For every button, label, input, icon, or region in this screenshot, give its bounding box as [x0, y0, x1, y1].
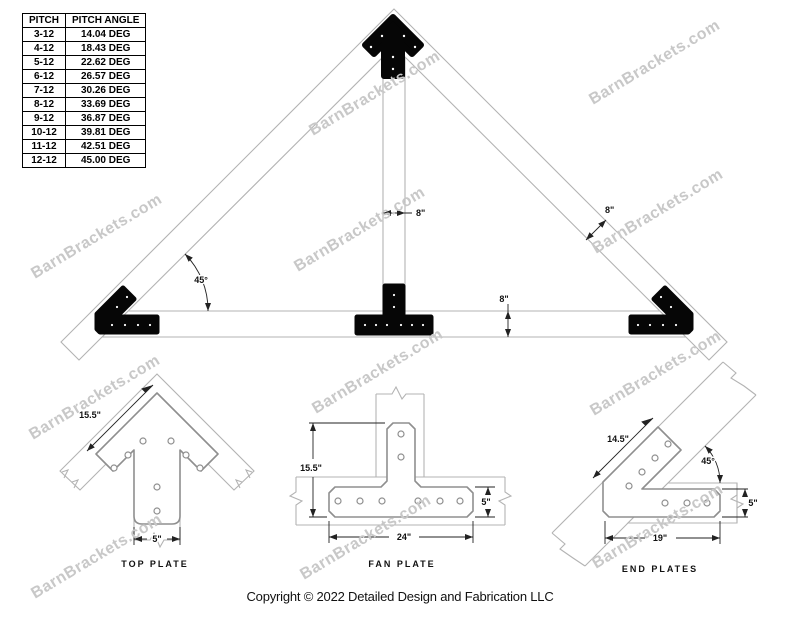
chord-depth-dim: 8": [499, 294, 508, 304]
table-row: 3-1214.04 DEG: [23, 28, 146, 42]
pitch-cell: 5-12: [23, 56, 66, 70]
angle-cell: 45.00 DEG: [66, 154, 146, 168]
pitch-cell: 4-12: [23, 42, 66, 56]
table-row: 4-1218.43 DEG: [23, 42, 146, 56]
break-mark: [723, 362, 756, 395]
fan-plate-bar-dim: 5": [481, 497, 490, 507]
end-plate-angle-dim: 45°: [701, 456, 715, 466]
break-mark: [376, 387, 424, 399]
rafter-width-dim: 8": [605, 205, 614, 215]
table-row: 6-1226.57 DEG: [23, 70, 146, 84]
angle-cell: 33.69 DEG: [66, 98, 146, 112]
pitch-angle-header: PITCH ANGLE: [66, 14, 146, 28]
angle-cell: 22.62 DEG: [66, 56, 146, 70]
top-plate-length-dim: 15.5": [79, 410, 101, 420]
top-plate-caption: TOP PLATE: [121, 559, 189, 569]
end-plate-bar-dim: 5": [748, 498, 757, 508]
pitch-cell: 8-12: [23, 98, 66, 112]
top-plate-outline: [96, 393, 218, 524]
fan-plate-width-dim: 24": [397, 532, 411, 542]
pitch-cell: 3-12: [23, 28, 66, 42]
angle-cell: 36.87 DEG: [66, 112, 146, 126]
table-row: 8-1233.69 DEG: [23, 98, 146, 112]
pitch-cell: 6-12: [23, 70, 66, 84]
angle-cell: 30.26 DEG: [66, 84, 146, 98]
angle-cell: 14.04 DEG: [66, 28, 146, 42]
table-header-row: PITCH PITCH ANGLE: [23, 14, 146, 28]
pitch-cell: 9-12: [23, 112, 66, 126]
table-row: 7-1230.26 DEG: [23, 84, 146, 98]
pitch-header: PITCH: [23, 14, 66, 28]
pitch-angle-table: PITCH PITCH ANGLE 3-1214.04 DEG 4-1218.4…: [22, 13, 146, 168]
table-row: 5-1222.62 DEG: [23, 56, 146, 70]
pitch-angle-dim: 45°: [194, 275, 208, 285]
table-row: 10-1239.81 DEG: [23, 126, 146, 140]
fan-plate-bracket: [357, 286, 431, 333]
pitch-cell: 7-12: [23, 84, 66, 98]
end-plates-width-dim: 19": [653, 533, 667, 543]
end-plates-caption: END PLATES: [622, 564, 698, 574]
copyright-line: Copyright © 2022 Detailed Design and Fab…: [0, 589, 800, 604]
table-row: 11-1242.51 DEG: [23, 140, 146, 154]
angle-cell: 42.51 DEG: [66, 140, 146, 154]
table-row: 9-1236.87 DEG: [23, 112, 146, 126]
truss-brackets: [97, 17, 691, 333]
pitch-cell: 12-12: [23, 154, 66, 168]
post-width-dim: 8": [416, 208, 425, 218]
angle-cell: 18.43 DEG: [66, 42, 146, 56]
end-plate-length-dim: 14.5": [607, 434, 629, 444]
break-mark: [290, 477, 302, 525]
angle-cell: 39.81 DEG: [66, 126, 146, 140]
pitch-cell: 10-12: [23, 126, 66, 140]
top-plate-detail: 15.5" 5" TOP PLATE: [60, 374, 254, 569]
break-mark: [499, 477, 511, 525]
angle-cell: 26.57 DEG: [66, 70, 146, 84]
table-row: 12-1245.00 DEG: [23, 154, 146, 168]
blueprint-page: BarnBrackets.com BarnBrackets.com BarnBr…: [0, 0, 800, 618]
break-mark: [552, 533, 585, 566]
top-plate-tail-dim: 5": [152, 534, 161, 544]
end-plates-detail: 14.5" 45° 5" 19" END PLATES: [552, 362, 758, 574]
fan-plate-detail: 15.5" 24" 5" FAN PLATE: [290, 387, 511, 569]
fan-plate-caption: FAN PLATE: [368, 559, 435, 569]
pitch-cell: 11-12: [23, 140, 66, 154]
fan-plate-height-dim: 15.5": [300, 463, 322, 473]
